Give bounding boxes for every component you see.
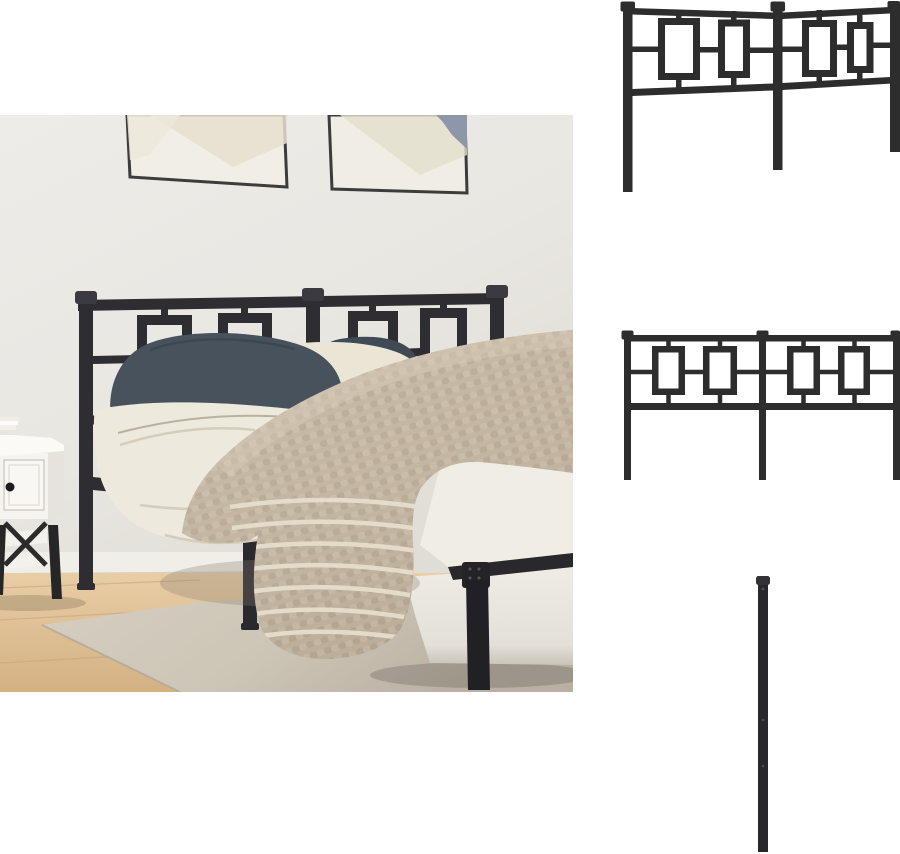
headboard-inner-foot: [241, 623, 259, 630]
post-leg: [758, 578, 768, 852]
post-cap: [486, 285, 508, 298]
post-cap: [771, 2, 786, 12]
thumbnail-post-detail[interactable]: [748, 570, 778, 854]
product-gallery-composite: [0, 0, 900, 854]
top-rail-left: [633, 8, 774, 19]
thumbnail-headboard-front[interactable]: [615, 328, 900, 484]
headboard-left-post: [79, 293, 93, 585]
headboard-front-drawing: [615, 328, 900, 484]
post-cap: [756, 576, 770, 585]
left-post: [623, 4, 633, 192]
framed-print-right: [329, 115, 467, 193]
bottom-rail-left: [633, 84, 774, 97]
bottom-rail-right: [783, 77, 900, 91]
bed-leg: [466, 580, 490, 690]
headboard-left-foot: [77, 583, 95, 590]
nightstand-side: [48, 448, 64, 522]
headboard-front-frame: [622, 331, 900, 481]
middle-post: [773, 4, 783, 170]
framed-print-left: [127, 115, 287, 187]
main-product-photo[interactable]: [0, 115, 573, 692]
headboard-angled-drawing: [605, 0, 900, 200]
bedroom-scene: [0, 115, 573, 692]
post-cap: [302, 288, 324, 301]
drawer-knob: [6, 483, 15, 492]
post-drawing: [748, 570, 778, 854]
top-rail: [624, 335, 900, 342]
bottom-rail: [624, 403, 900, 410]
thumbnail-headboard-angled[interactable]: [605, 0, 900, 200]
top-rail-right: [783, 7, 900, 20]
post-cap: [75, 291, 97, 304]
